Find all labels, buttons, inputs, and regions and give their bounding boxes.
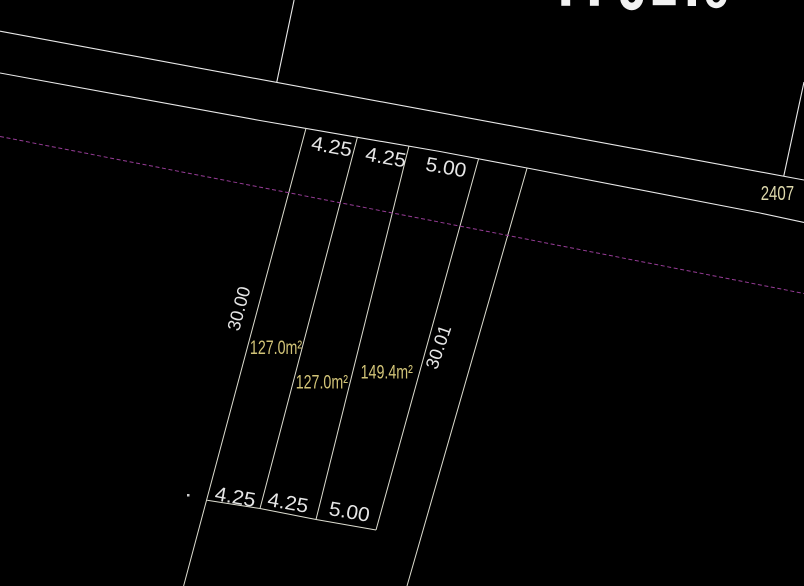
svg-text:149.4m²: 149.4m² [361, 361, 414, 382]
svg-text:127.0m²: 127.0m² [296, 372, 349, 393]
svg-text:2407: 2407 [761, 182, 794, 205]
svg-text:4.25: 4.25 [364, 143, 408, 172]
svg-text:4.25: 4.25 [310, 132, 354, 161]
svg-text:5.00: 5.00 [424, 153, 468, 182]
svg-text:4.25: 4.25 [213, 483, 257, 512]
svg-text:30.00: 30.00 [223, 284, 254, 333]
svg-text:127.0m²: 127.0m² [250, 337, 303, 358]
svg-text:4.25: 4.25 [266, 488, 310, 517]
